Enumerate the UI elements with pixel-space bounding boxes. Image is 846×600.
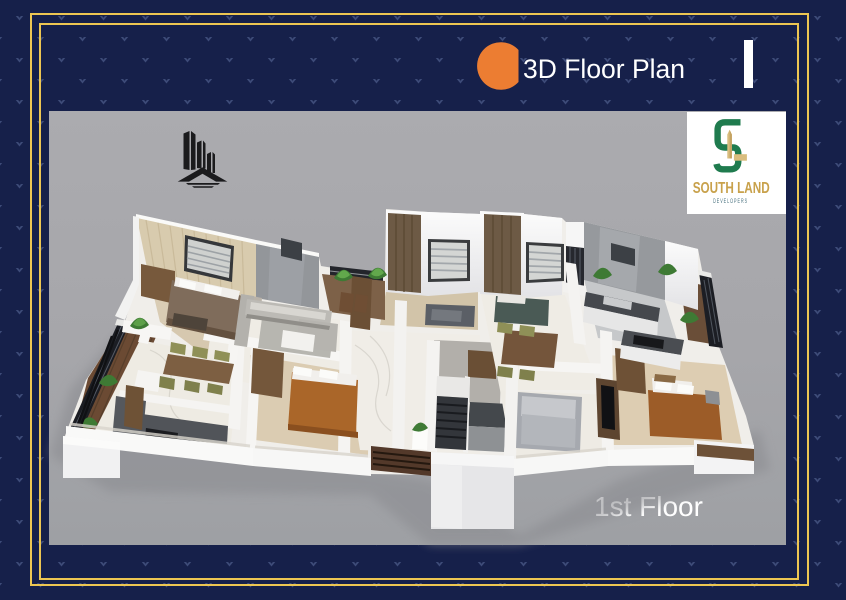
svg-text:SOUTH LAND: SOUTH LAND	[693, 180, 770, 197]
svg-text:DEVELOPERS: DEVELOPERS	[713, 199, 748, 205]
